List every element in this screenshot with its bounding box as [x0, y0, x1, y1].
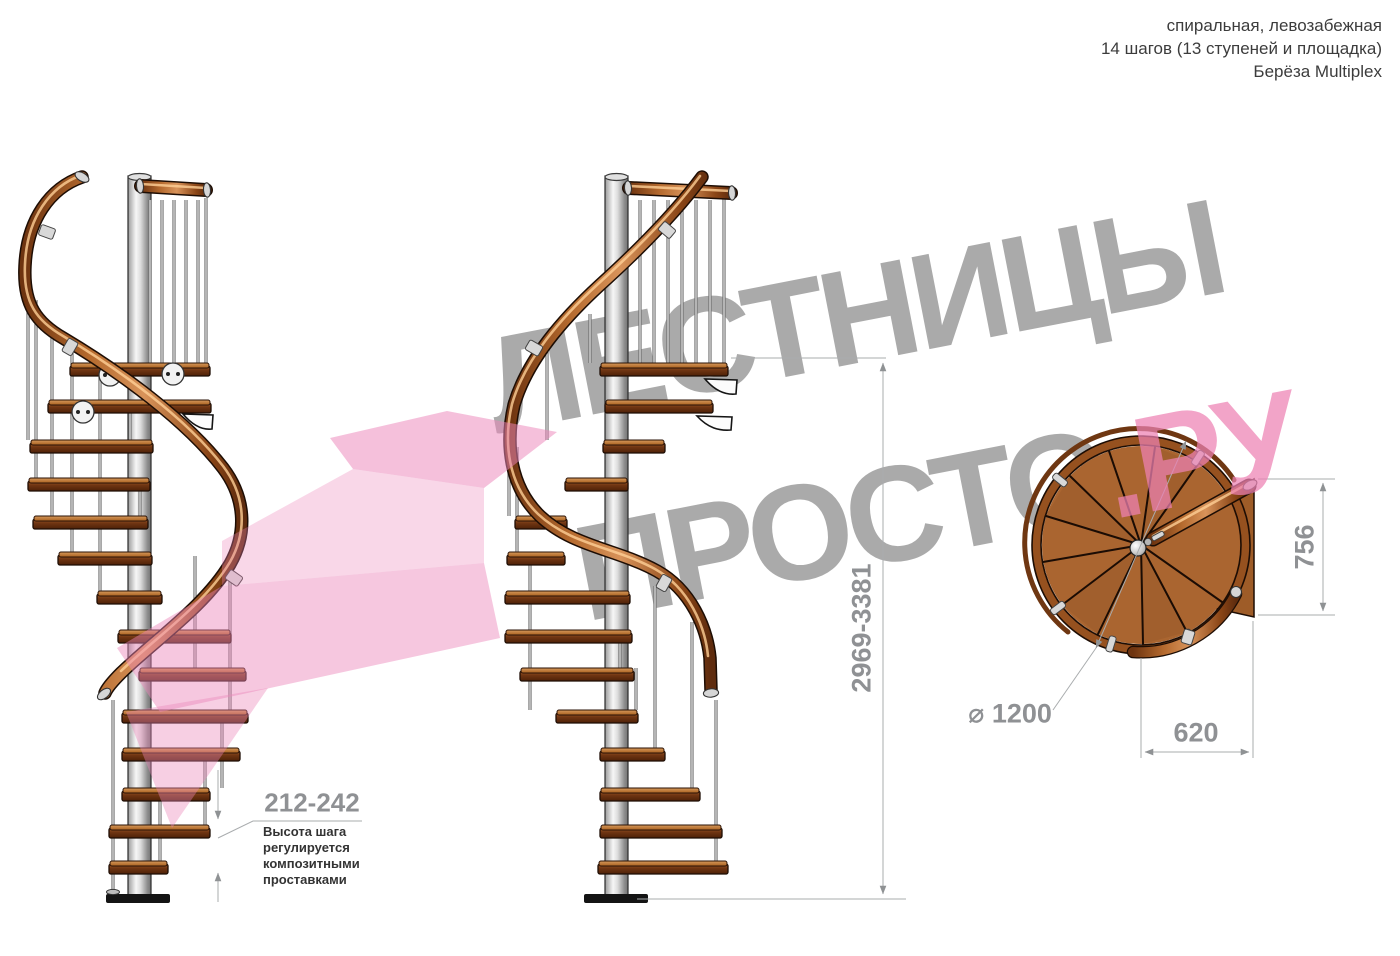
dim-landing-width: 620: [1173, 718, 1218, 749]
tread: [33, 516, 148, 529]
tread: [605, 400, 713, 413]
tread: [58, 552, 152, 565]
dim-landing-depth: 756: [1290, 524, 1321, 569]
tread: [507, 552, 565, 565]
tread-bracket: [697, 416, 732, 430]
tread: [122, 710, 248, 723]
tread: [122, 748, 240, 761]
tread: [565, 478, 628, 491]
pole-flange: [72, 401, 94, 423]
landing-bracket: [705, 379, 737, 394]
tread: [556, 710, 638, 723]
tread: [97, 591, 162, 604]
leader-line: [1053, 648, 1096, 710]
staircase-side-view-right: [505, 174, 737, 904]
tread: [505, 591, 630, 604]
tread: [598, 861, 728, 874]
dim-diameter: ⌀ 1200: [968, 699, 1052, 730]
center-pole-plan: [1130, 540, 1146, 556]
tread: [139, 668, 246, 681]
tread: [600, 788, 700, 801]
dim-total-height: 2969-3381: [847, 563, 878, 692]
tread: [603, 440, 665, 453]
tread: [600, 363, 728, 376]
pole-flange: [162, 363, 184, 385]
dim-step-height: 212-242: [264, 788, 359, 819]
tread: [30, 440, 153, 453]
step-height-note: Высота шага регулируется композитными пр…: [263, 824, 360, 888]
tread: [122, 788, 210, 801]
drawing-canvas: ЛЕСТНИЦЫ ПРОСТО.РУ: [0, 0, 1400, 956]
tread: [70, 363, 210, 376]
tread: [520, 668, 634, 681]
staircase-drawing: [0, 0, 1400, 956]
tread: [600, 748, 665, 761]
tread: [600, 825, 722, 838]
tread: [505, 630, 632, 643]
tread: [28, 478, 150, 491]
staircase-top-plan-view: [1025, 429, 1259, 654]
staircase-side-view-left: [25, 170, 248, 903]
tread: [109, 861, 168, 874]
tread: [109, 825, 210, 838]
pole-base-plate: [106, 894, 170, 903]
